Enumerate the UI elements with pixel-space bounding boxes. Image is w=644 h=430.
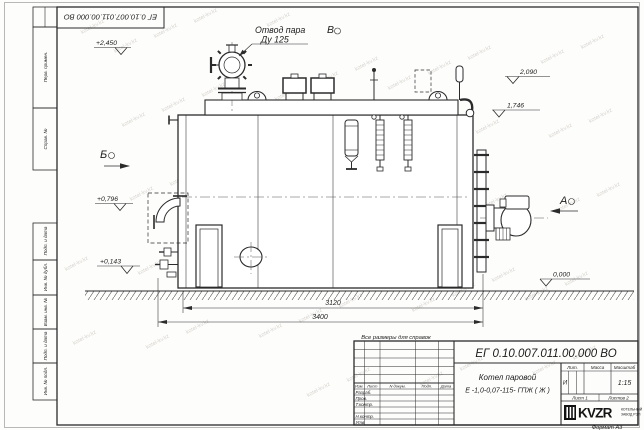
- row-razrab: Разраб.: [356, 390, 372, 395]
- col-izm: Изм.: [355, 384, 364, 389]
- mass-label: Масса: [591, 365, 605, 370]
- logo-subline1: КОТЕЛЬНЫЙ: [621, 408, 643, 412]
- steam-outlet-label-line2: Ду 125: [260, 35, 289, 45]
- svg-text:Б: Б: [100, 149, 107, 161]
- svg-text:А: А: [559, 195, 567, 207]
- product-name-line1: Котел паровой: [479, 373, 537, 382]
- logo-text: KVZR: [578, 406, 613, 421]
- drawing-sheet: kotel-kv.kzkotel-kv.kzkotel-kv.kzkotel-k…: [0, 0, 644, 430]
- steam-outlet-label-line1: Отвод пара: [255, 25, 305, 35]
- svg-text:+0,143: +0,143: [100, 259, 121, 266]
- sheet-cell: Лист 1: [571, 395, 588, 400]
- reference-note: Все размеры для справок: [361, 335, 431, 341]
- ground-line: [85, 291, 634, 300]
- stamp-podp-data-2: Подп. и дата: [43, 331, 48, 360]
- stamp-inv-podl: Инв. № подл.: [43, 367, 48, 396]
- scale-value: 1:15: [618, 380, 632, 387]
- designation-mirrored-text: ЕГ 0.10.007.011.00.000 ВО: [64, 13, 157, 22]
- doc-number: ЕГ 0.10.007.011.00.000 ВО: [475, 348, 616, 360]
- sheets-cell: Листов 2: [607, 395, 629, 400]
- format-note: Формат А3: [592, 425, 623, 430]
- svg-text:+0,796: +0,796: [97, 196, 118, 203]
- col-data: Дата: [440, 384, 452, 389]
- svg-text:1,746: 1,746: [507, 103, 524, 110]
- row-tkontr: Т.контр.: [356, 402, 374, 407]
- svg-text:В: В: [327, 24, 334, 36]
- svg-text:0,000: 0,000: [553, 272, 570, 279]
- row-nkontr: Н.контр.: [356, 414, 375, 419]
- stamp-sprav-no: Справ. №: [43, 129, 48, 150]
- stamp-podp-data-1: Подп. и дата: [43, 226, 48, 255]
- col-doc: N докум.: [390, 384, 406, 389]
- stamp-perv-primen: Перв. примен.: [43, 52, 48, 83]
- lit-value: И: [563, 381, 568, 387]
- svg-text:+2,450: +2,450: [96, 40, 117, 47]
- product-name-line2: Е -1,0-0,07-115- ГПЖ ( Ж ): [465, 388, 550, 395]
- stamp-inv-dubl: Инв. № дубл.: [43, 263, 48, 291]
- row-utv: Утв.: [356, 420, 366, 425]
- dim-overall-text: 3400: [312, 314, 328, 321]
- col-podp: Подп.: [421, 384, 432, 389]
- svg-text:2,090: 2,090: [519, 69, 537, 76]
- scale-label: Масштаб: [614, 365, 636, 370]
- row-prov: Пров.: [356, 396, 368, 401]
- stamp-vzam-inv: Взам. инв. №: [43, 298, 48, 326]
- dim-inner-text: 3120: [325, 300, 341, 307]
- col-list: Лист: [366, 384, 378, 389]
- logo-subline2: ЗАВОД РЭП: [621, 413, 641, 417]
- lit-label: Лит.: [566, 365, 578, 370]
